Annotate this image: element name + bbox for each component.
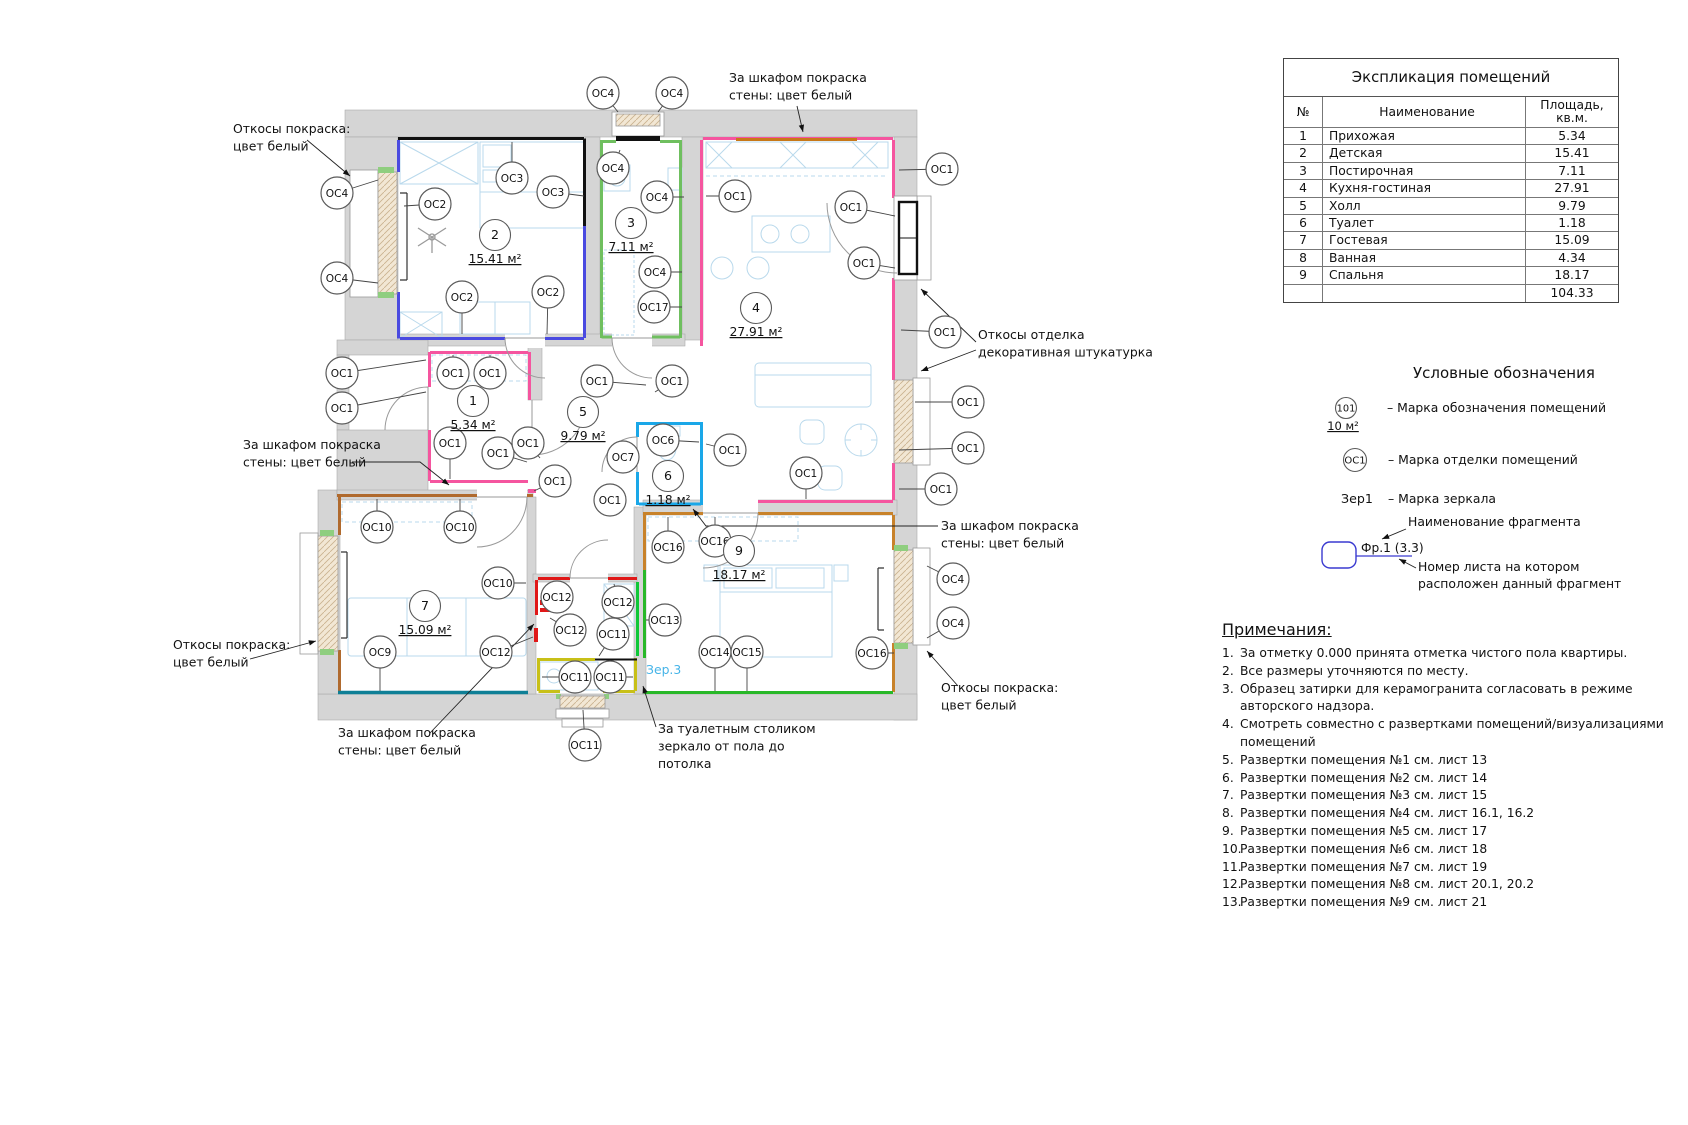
svg-text:ОС1: ОС1 [795, 468, 817, 480]
svg-text:стены: цвет белый: стены: цвет белый [941, 536, 1064, 551]
svg-text:ОС11: ОС11 [595, 672, 624, 684]
finish-marker: ОС9 [364, 636, 396, 668]
cell-name: Туалет [1322, 215, 1525, 232]
svg-text:ОС1: ОС1 [544, 476, 566, 488]
svg-text:6: 6 [664, 468, 672, 483]
cell-total: 104.33 [1525, 285, 1618, 302]
finish-marker: ОС4 [587, 77, 619, 109]
finish-marker: ОС1 [326, 357, 358, 389]
drawing-sheet: Откосы покраска:цвет белыйЗа шкафом покр… [0, 0, 1688, 1125]
svg-text:ОС3: ОС3 [501, 173, 523, 185]
col-name: Наименование [1322, 97, 1525, 128]
legend-graphics: Условные обозначения10110 м²– Марка обоз… [1322, 364, 1621, 591]
table-total-row: 104.33 [1284, 285, 1618, 302]
svg-text:15.09 м²: 15.09 м² [399, 623, 452, 637]
legend-finish-mark-desc: – Марка отделки помещений [1388, 452, 1578, 467]
finish-marker: ОС1 [925, 473, 957, 505]
svg-text:ОС16: ОС16 [857, 648, 886, 660]
finish-marker: ОС11 [559, 661, 591, 693]
finish-marker: ОС1 [656, 365, 688, 397]
svg-text:Номер листа на котором: Номер листа на котором [1418, 559, 1580, 574]
cell-no: 9 [1284, 267, 1322, 284]
svg-text:ОС12: ОС12 [555, 625, 584, 637]
finish-marker: ОС1 [326, 392, 358, 424]
cell-no: 7 [1284, 232, 1322, 249]
table-row: 4Кухня-гостиная27.91 [1284, 180, 1618, 197]
finish-marker: ОС1 [926, 153, 958, 185]
svg-text:декоративная штукатурка: декоративная штукатурка [978, 345, 1153, 360]
cell-no: 1 [1284, 128, 1322, 145]
svg-text:За шкафом покраска: За шкафом покраска [338, 725, 476, 740]
cell-name: Кухня-гостиная [1322, 180, 1525, 197]
svg-text:ОС17: ОС17 [639, 302, 668, 314]
svg-text:10 м²: 10 м² [1327, 419, 1359, 433]
svg-text:ОС3: ОС3 [542, 187, 564, 199]
finish-marker: ОС2 [532, 276, 564, 308]
finish-marker: ОС13 [649, 604, 681, 636]
table-body: 1Прихожая5.342Детская15.413Постирочная7.… [1284, 128, 1618, 302]
table-title: Экспликация помещений [1284, 59, 1618, 97]
room-label: 215.41 м² [469, 220, 522, 267]
finish-marker: ОС11 [597, 618, 629, 650]
legend-mirror-desc: – Марка зеркала [1388, 491, 1496, 506]
svg-text:ОС11: ОС11 [598, 629, 627, 641]
cell-area: 4.34 [1525, 250, 1618, 267]
svg-text:ОС1: ОС1 [853, 258, 875, 270]
svg-text:ОС9: ОС9 [369, 647, 391, 659]
note-item: 10.Развертки помещения №6 см. лист 18 [1215, 841, 1677, 859]
cell-area: 18.17 [1525, 267, 1618, 284]
table-row: 9Спальня18.17 [1284, 267, 1618, 284]
cell-name: Холл [1322, 198, 1525, 215]
svg-text:цвет белый: цвет белый [941, 698, 1017, 713]
svg-text:ОС1: ОС1 [331, 368, 353, 380]
finish-marker: ОС4 [321, 177, 353, 209]
svg-text:ОС1: ОС1 [479, 368, 501, 380]
cell-no: 2 [1284, 145, 1322, 162]
svg-text:ОС1: ОС1 [331, 403, 353, 415]
finish-marker: ОС7 [607, 441, 639, 473]
finish-marker: ОС1 [929, 316, 961, 348]
table-row: 7Гостевая15.09 [1284, 232, 1618, 249]
notes-title: Примечания: [1222, 620, 1677, 639]
svg-text:стены: цвет белый: стены: цвет белый [729, 88, 852, 103]
svg-text:Откосы покраска:: Откосы покраска: [233, 121, 350, 136]
room-label: 427.91 м² [730, 293, 783, 340]
finish-marker: ОС12 [480, 636, 512, 668]
finish-marker: ОС2 [446, 281, 478, 313]
finish-marker: ОС4 [641, 181, 673, 213]
cell-area: 7.11 [1525, 163, 1618, 180]
col-area: Площадь, кв.м. [1525, 97, 1618, 128]
svg-text:стены: цвет белый: стены: цвет белый [338, 743, 461, 758]
finish-marker: ОС16 [856, 637, 888, 669]
finish-marker: ОС12 [602, 586, 634, 618]
fragment-label: Фр.1 (3.3) [1361, 541, 1424, 555]
finish-marker: ОС1 [437, 357, 469, 389]
svg-text:ОС10: ОС10 [483, 578, 512, 590]
svg-text:ОС1: ОС1 [599, 495, 621, 507]
svg-text:Наименование фрагмента: Наименование фрагмента [1408, 514, 1581, 529]
svg-text:9.79 м²: 9.79 м² [560, 429, 605, 443]
svg-text:расположен данный фрагмент: расположен данный фрагмент [1418, 576, 1621, 591]
finish-marker: ОС11 [569, 729, 601, 761]
svg-text:ОС4: ОС4 [661, 88, 684, 100]
svg-text:За туалетным столиком: За туалетным столиком [658, 721, 816, 736]
svg-text:ОС1: ОС1 [957, 443, 979, 455]
svg-text:ОС1: ОС1 [442, 368, 464, 380]
room-label: 59.79 м² [560, 397, 605, 444]
table-row: 5Холл9.79 [1284, 198, 1618, 215]
cell-no: 3 [1284, 163, 1322, 180]
svg-text:ОС4: ОС4 [326, 188, 349, 200]
note-item: 11.Развертки помещения №7 см. лист 19 [1215, 859, 1677, 877]
svg-text:9: 9 [735, 543, 743, 558]
finish-marker: ОС1 [539, 465, 571, 497]
cell-area: 15.41 [1525, 145, 1618, 162]
finish-marker: ОС12 [541, 581, 573, 613]
notes-list: 1.За отметку 0.000 принята отметка чисто… [1215, 645, 1677, 912]
mirror-label: Зер.3 [646, 662, 681, 677]
cell-area: 5.34 [1525, 128, 1618, 145]
note-item: 2.Все размеры уточняются по месту. [1215, 663, 1677, 681]
svg-text:ОС1: ОС1 [719, 445, 741, 457]
cell-name: Ванная [1322, 250, 1525, 267]
svg-text:ОС7: ОС7 [612, 452, 634, 464]
svg-text:ОС1: ОС1 [957, 397, 979, 409]
finish-marker: ОС14 [699, 636, 731, 668]
note-item: 5.Развертки помещения №1 см. лист 13 [1215, 752, 1677, 770]
svg-text:ОС6: ОС6 [652, 435, 675, 447]
note-item: 9.Развертки помещения №5 см. лист 17 [1215, 823, 1677, 841]
finish-marker: ОС1 [835, 191, 867, 223]
finish-marker: ОС4 [639, 256, 671, 288]
finish-marker: ОС4 [656, 77, 688, 109]
cell-name: Прихожая [1322, 128, 1525, 145]
svg-text:1.18 м²: 1.18 м² [645, 493, 690, 507]
finish-marker: ОС3 [496, 162, 528, 194]
svg-text:стены: цвет белый: стены: цвет белый [243, 455, 366, 470]
finish-marker: ОС1 [952, 432, 984, 464]
svg-text:ОС10: ОС10 [445, 522, 474, 534]
svg-text:ОС4: ОС4 [644, 267, 667, 279]
note-item: 3.Образец затирки для керамогранита согл… [1215, 681, 1677, 717]
svg-text:ОС12: ОС12 [542, 592, 571, 604]
svg-text:5: 5 [579, 404, 587, 419]
table-row: 2Детская15.41 [1284, 145, 1618, 162]
svg-text:ОС2: ОС2 [451, 292, 473, 304]
svg-text:15.41 м²: 15.41 м² [469, 252, 522, 266]
room-label: 37.11 м² [608, 208, 653, 255]
room-label: 15.34 м² [450, 386, 495, 433]
svg-text:Откосы покраска:: Откосы покраска: [941, 680, 1058, 695]
fragment-symbol [1322, 542, 1356, 568]
svg-text:4: 4 [752, 300, 760, 315]
note-item: 13.Развертки помещения №9 см. лист 21 [1215, 894, 1677, 912]
plan-annotation: Откосы покраска:цвет белый [233, 121, 350, 176]
legend-title: Условные обозначения [1413, 364, 1595, 382]
cell-no: 8 [1284, 250, 1322, 267]
chair-icon [418, 228, 446, 253]
svg-text:ОС2: ОС2 [537, 287, 559, 299]
col-no: № [1284, 97, 1322, 128]
finish-markers-layer: ОС4ОС4ОС2ОС3ОС3ОС2ОС2ОС4ОС4ОС4ОС4ОС4ОС17… [321, 77, 984, 761]
finish-marker: ОС1 [714, 434, 746, 466]
cell-name: Гостевая [1322, 232, 1525, 249]
svg-text:7.11 м²: 7.11 м² [608, 240, 653, 254]
finish-marker: ОС3 [537, 176, 569, 208]
cell-name: Постирочная [1322, 163, 1525, 180]
svg-text:За шкафом покраска: За шкафом покраска [243, 437, 381, 452]
svg-text:ОС1: ОС1 [517, 438, 539, 450]
legend-mirror-mark: Зер1 [1341, 491, 1373, 506]
table-row: 6Туалет1.18 [1284, 215, 1618, 232]
finish-marker: ОС16 [652, 531, 684, 563]
table-row: 8Ванная4.34 [1284, 250, 1618, 267]
svg-text:7: 7 [421, 598, 429, 613]
cell-name: Спальня [1322, 267, 1525, 284]
finish-marker: ОС2 [419, 188, 451, 220]
explication-table: Экспликация помещений № Наименование Пло… [1283, 58, 1619, 303]
room-label: 61.18 м² [645, 461, 690, 508]
cell-name: Детская [1322, 145, 1525, 162]
legend-room-mark-desc: – Марка обозначения помещений [1387, 400, 1606, 415]
svg-text:ОС1: ОС1 [840, 202, 862, 214]
svg-text:потолка: потолка [658, 756, 711, 771]
svg-text:ОС14: ОС14 [700, 647, 729, 659]
finish-marker: ОС1 [512, 427, 544, 459]
finish-marker: ОС17 [638, 291, 670, 323]
svg-text:ОС15: ОС15 [732, 647, 761, 659]
note-item: 6.Развертки помещения №2 см. лист 14 [1215, 770, 1677, 788]
note-item: 8.Развертки помещения №4 см. лист 16.1, … [1215, 805, 1677, 823]
svg-text:ОС1: ОС1 [724, 191, 746, 203]
svg-text:ОС4: ОС4 [326, 273, 349, 285]
note-item: 7.Развертки помещения №3 см. лист 15 [1215, 787, 1677, 805]
svg-text:ОС1: ОС1 [586, 376, 608, 388]
finish-marker: ОС1 [848, 247, 880, 279]
svg-text:цвет белый: цвет белый [173, 655, 249, 670]
cell-area: 15.09 [1525, 232, 1618, 249]
svg-text:Откосы отделка: Откосы отделка [978, 327, 1085, 342]
svg-text:За шкафом покраска: За шкафом покраска [729, 70, 867, 85]
svg-text:За шкафом покраска: За шкафом покраска [941, 518, 1079, 533]
finish-marker: ОС4 [321, 262, 353, 294]
svg-text:18.17 м²: 18.17 м² [713, 568, 766, 582]
svg-text:ОС12: ОС12 [603, 597, 632, 609]
cell-no: 6 [1284, 215, 1322, 232]
cell-area: 27.91 [1525, 180, 1618, 197]
finish-marker: ОС6 [647, 424, 679, 456]
svg-text:27.91 м²: 27.91 м² [730, 325, 783, 339]
svg-text:1: 1 [469, 393, 477, 408]
note-item: 1.За отметку 0.000 принята отметка чисто… [1215, 645, 1677, 663]
cell-area: 1.18 [1525, 215, 1618, 232]
svg-text:зеркало от пола до: зеркало от пола до [658, 739, 785, 754]
finish-marker: ОС4 [937, 607, 969, 639]
svg-text:ОС4: ОС4 [602, 163, 625, 175]
finish-marker: ОС12 [554, 614, 586, 646]
plan-annotation: Откосы покраска:цвет белый [927, 651, 1058, 713]
table-row: 1Прихожая5.34 [1284, 128, 1618, 145]
finish-marker: ОС1 [952, 386, 984, 418]
svg-text:ОС13: ОС13 [650, 615, 679, 627]
notes-block: Примечания: 1.За отметку 0.000 принята о… [1215, 620, 1677, 912]
finish-marker: ОС1 [790, 457, 822, 489]
svg-text:ОС1: ОС1 [487, 448, 509, 460]
svg-text:ОС12: ОС12 [481, 647, 510, 659]
svg-text:3: 3 [627, 215, 635, 230]
svg-text:ОС10: ОС10 [362, 522, 391, 534]
svg-text:Откосы покраска:: Откосы покраска: [173, 637, 290, 652]
finish-marker: ОС1 [581, 365, 613, 397]
table-row: 3Постирочная7.11 [1284, 163, 1618, 180]
finish-marker: ОС1 [594, 484, 626, 516]
finish-marker: ОС4 [597, 152, 629, 184]
svg-text:ОС1: ОС1 [439, 438, 461, 450]
plan-annotation: Откосы покраска:цвет белый [173, 637, 316, 670]
svg-text:2: 2 [491, 227, 499, 242]
note-item: 4.Смотреть совместно с развертками помещ… [1215, 716, 1677, 752]
finish-marker: ОС1 [474, 357, 506, 389]
finish-marker: ОС1 [719, 180, 751, 212]
svg-text:ОС4: ОС4 [942, 574, 965, 586]
cell-no: 4 [1284, 180, 1322, 197]
svg-text:ОС1: ОС1 [661, 376, 683, 388]
svg-text:ОС2: ОС2 [424, 199, 446, 211]
finish-marker: ОС15 [731, 636, 763, 668]
svg-text:ОС4: ОС4 [646, 192, 669, 204]
finish-marker: ОС10 [361, 511, 393, 543]
finish-marker: ОС1 [482, 437, 514, 469]
finish-marker: ОС10 [444, 511, 476, 543]
svg-text:ОС4: ОС4 [942, 618, 965, 630]
cell-no: 5 [1284, 198, 1322, 215]
svg-text:цвет белый: цвет белый [233, 139, 309, 154]
svg-text:ОС11: ОС11 [560, 672, 589, 684]
finish-marker: ОС11 [594, 661, 626, 693]
table-header: № Наименование Площадь, кв.м. [1284, 97, 1618, 128]
svg-text:ОС4: ОС4 [592, 88, 615, 100]
svg-text:101: 101 [1337, 404, 1356, 415]
svg-text:ОС11: ОС11 [570, 740, 599, 752]
note-item: 12.Развертки помещения №8 см. лист 20.1,… [1215, 876, 1677, 894]
svg-text:ОС1: ОС1 [934, 327, 956, 339]
cell-area: 9.79 [1525, 198, 1618, 215]
svg-text:ОС1: ОС1 [930, 484, 952, 496]
finish-marker: ОС10 [482, 567, 514, 599]
svg-text:ОС1: ОС1 [1344, 456, 1365, 467]
finish-marker: ОС4 [937, 563, 969, 595]
svg-text:ОС16: ОС16 [653, 542, 682, 554]
svg-text:ОС1: ОС1 [931, 164, 953, 176]
svg-text:5.34 м²: 5.34 м² [450, 418, 495, 432]
